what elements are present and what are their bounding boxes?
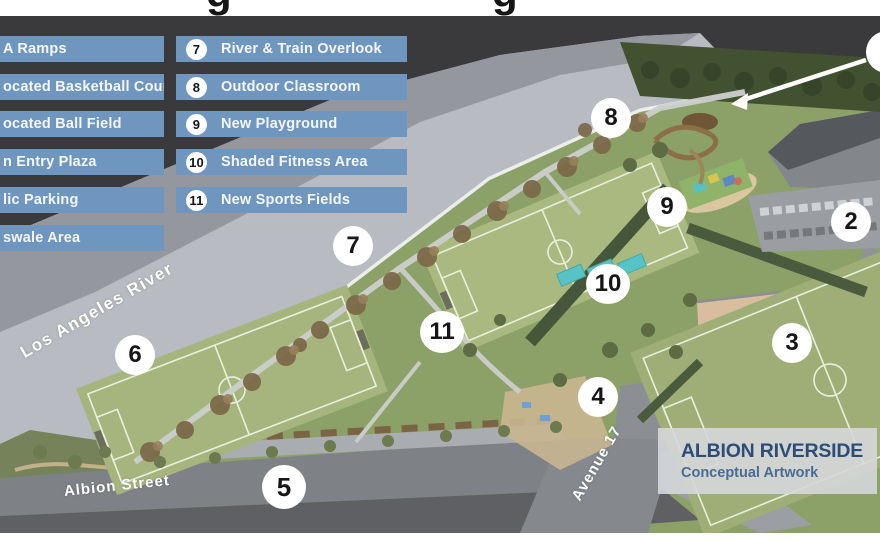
legend-label: Outdoor Classroom bbox=[221, 79, 361, 95]
legend-label: Shaded Fitness Area bbox=[221, 154, 368, 170]
legend-number-badge: 11 bbox=[186, 190, 207, 211]
map-marker-5: 5 bbox=[262, 465, 306, 509]
map-marker-3: 3 bbox=[772, 323, 812, 363]
cropped-title-glyph: g bbox=[206, 0, 232, 16]
map-marker-9: 9 bbox=[647, 187, 687, 227]
legend-item-entry-plaza: n Entry Plaza bbox=[0, 149, 164, 175]
legend-item-outdoor-classroom: 8 Outdoor Classroom bbox=[176, 74, 407, 100]
legend-item-basketball-courts: ocated Basketball Courts bbox=[0, 74, 164, 100]
plaza-detail bbox=[522, 402, 531, 408]
legend-label: ocated Basketball Courts bbox=[3, 79, 164, 95]
legend-label: n Entry Plaza bbox=[3, 154, 97, 170]
map-marker-10: 10 bbox=[586, 264, 630, 304]
albion-riverside-map-screenshot: g g A Ramps ocated Basketball Courts oca… bbox=[0, 0, 880, 542]
legend-item-shaded-fitness-area: 10 Shaded Fitness Area bbox=[176, 149, 407, 175]
map-marker-11: 11 bbox=[420, 311, 464, 353]
legend-label: New Sports Fields bbox=[221, 192, 350, 208]
legend-number-badge: 8 bbox=[186, 77, 207, 98]
map-marker-6: 6 bbox=[115, 335, 155, 375]
legend-label: River & Train Overlook bbox=[221, 41, 382, 57]
credit-subtitle: Conceptual Artwork bbox=[681, 465, 877, 481]
legend-label: ocated Ball Field bbox=[3, 116, 122, 132]
cropped-title-glyph: g bbox=[492, 0, 518, 16]
legend-item-new-playground: 9 New Playground bbox=[176, 111, 407, 137]
legend-number-badge: 10 bbox=[186, 152, 207, 173]
map-marker-7: 7 bbox=[333, 226, 373, 266]
legend-item-new-sports-fields: 11 New Sports Fields bbox=[176, 187, 407, 213]
legend-label: lic Parking bbox=[3, 192, 79, 208]
legend-label: A Ramps bbox=[3, 41, 67, 57]
map-marker-4: 4 bbox=[578, 377, 618, 417]
legend-label: swale Area bbox=[3, 230, 80, 246]
legend-item-ball-field: ocated Ball Field bbox=[0, 111, 164, 137]
credit-box: ALBION RIVERSIDE Conceptual Artwork bbox=[658, 428, 877, 494]
legend-item-public-parking: lic Parking bbox=[0, 187, 164, 213]
cropped-title-strip: g g bbox=[0, 0, 880, 16]
cropped-bottom-strip bbox=[0, 533, 880, 542]
legend-item-ramps: A Ramps bbox=[0, 36, 164, 62]
plaza-detail bbox=[540, 415, 550, 421]
legend-item-river-train-overlook: 7 River & Train Overlook bbox=[176, 36, 407, 62]
legend-label: New Playground bbox=[221, 116, 337, 132]
credit-title: ALBION RIVERSIDE bbox=[681, 441, 877, 461]
map-marker-8: 8 bbox=[591, 98, 631, 138]
legend-item-swale-area: swale Area bbox=[0, 225, 164, 251]
legend-number-badge: 9 bbox=[186, 114, 207, 135]
legend-number-badge: 7 bbox=[186, 39, 207, 60]
map-marker-2: 2 bbox=[831, 202, 871, 242]
